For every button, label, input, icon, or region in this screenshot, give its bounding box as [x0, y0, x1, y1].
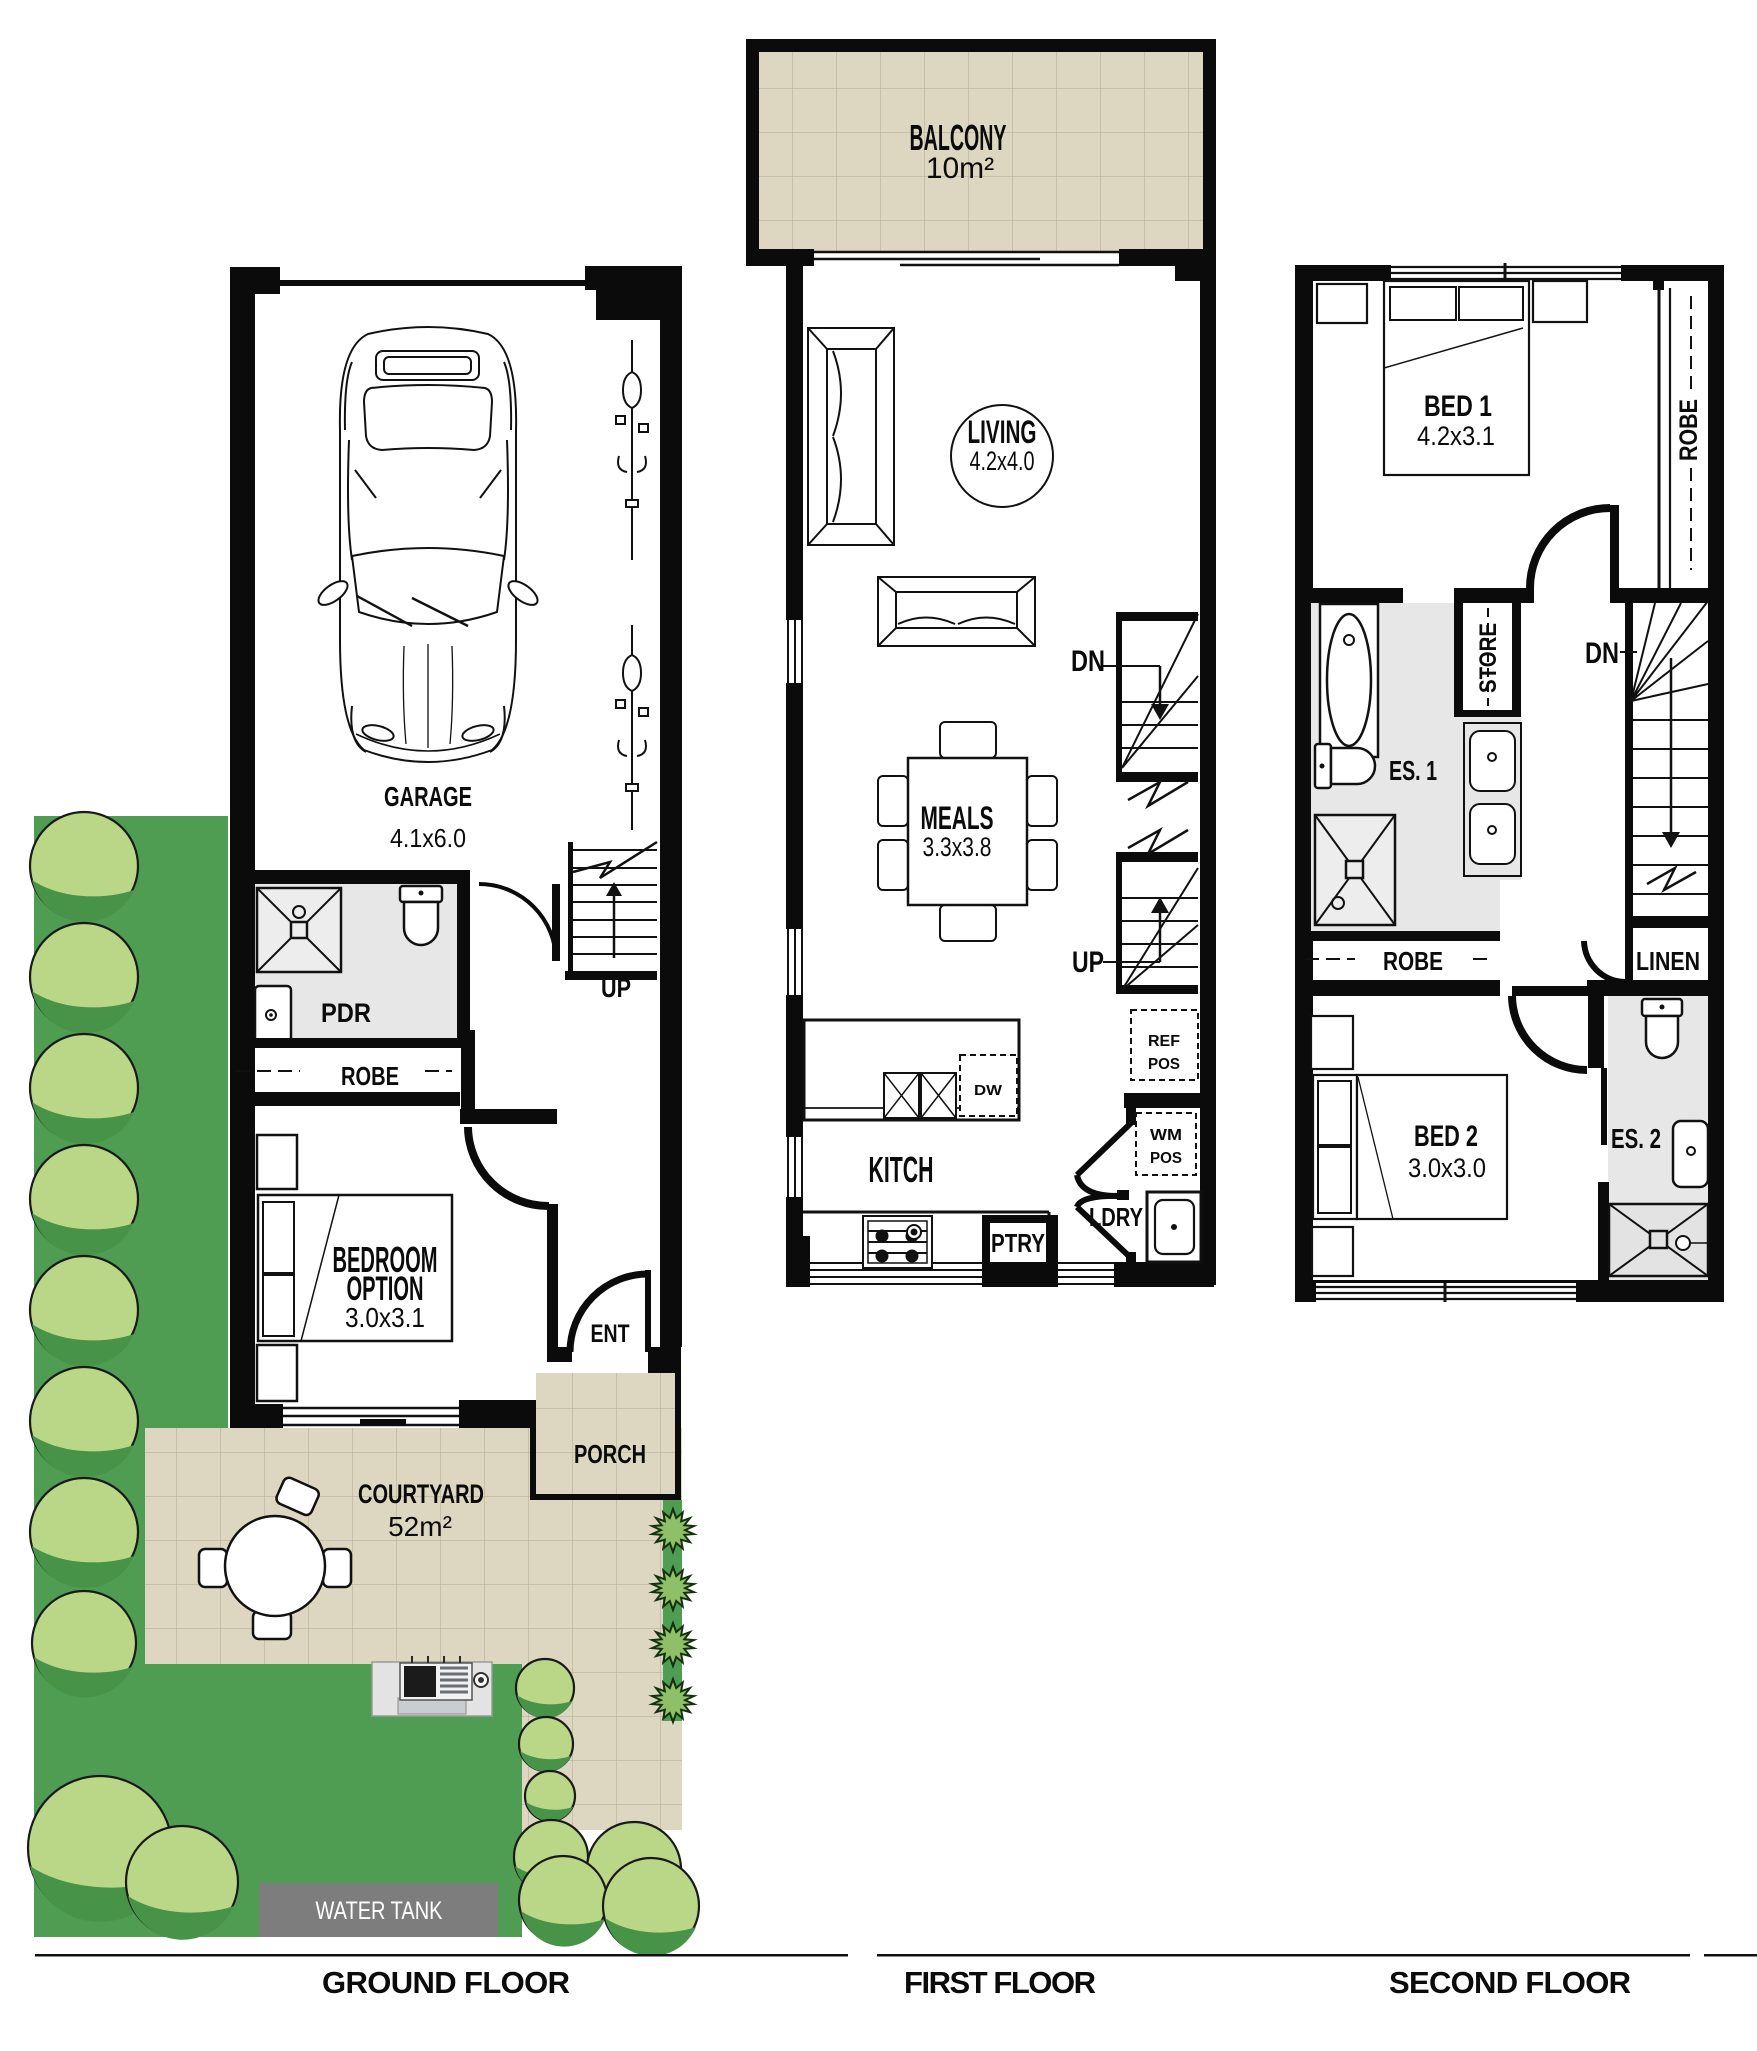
svg-text:STORE: STORE	[1475, 623, 1502, 693]
svg-text:REF: REF	[1148, 1033, 1180, 1050]
svg-text:POS: POS	[1150, 1150, 1182, 1167]
svg-text:GROUND FLOOR: GROUND FLOOR	[322, 1965, 570, 2000]
svg-text:52m²: 52m²	[388, 1511, 452, 1542]
svg-text:COURTYARD: COURTYARD	[358, 1479, 484, 1509]
svg-text:KITCH: KITCH	[869, 1149, 934, 1190]
svg-text:ROBE: ROBE	[1383, 946, 1443, 976]
svg-text:3.0x3.0: 3.0x3.0	[1408, 1153, 1486, 1183]
svg-text:UP: UP	[601, 973, 631, 1003]
svg-text:BED 2: BED 2	[1414, 1120, 1478, 1153]
svg-text:WM: WM	[1150, 1127, 1182, 1144]
svg-text:ENT: ENT	[591, 1320, 630, 1348]
svg-text:4.1x6.0: 4.1x6.0	[390, 823, 466, 853]
svg-text:PDR: PDR	[321, 998, 371, 1028]
svg-text:BED 1: BED 1	[1424, 390, 1492, 423]
svg-text:3.3x3.8: 3.3x3.8	[923, 832, 992, 862]
svg-text:LIVING: LIVING	[968, 414, 1037, 450]
svg-text:ROBE: ROBE	[1675, 399, 1703, 461]
svg-text:WATER TANK: WATER TANK	[316, 1897, 443, 1925]
svg-text:ROBE: ROBE	[341, 1061, 399, 1091]
svg-text:FIRST FLOOR: FIRST FLOOR	[904, 1965, 1096, 2000]
svg-text:LDRY: LDRY	[1089, 1202, 1143, 1232]
svg-text:PTRY: PTRY	[991, 1228, 1045, 1258]
svg-text:ES. 1: ES. 1	[1389, 755, 1437, 786]
svg-text:GARAGE: GARAGE	[384, 781, 472, 812]
svg-text:UP: UP	[1072, 946, 1104, 979]
svg-text:MEALS: MEALS	[921, 800, 994, 836]
svg-text:LINEN: LINEN	[1636, 946, 1700, 976]
svg-text:ES. 2: ES. 2	[1611, 1123, 1661, 1154]
svg-text:DW: DW	[974, 1082, 1003, 1099]
svg-text:DN: DN	[1071, 645, 1105, 678]
svg-text:SECOND FLOOR: SECOND FLOOR	[1389, 1965, 1631, 2000]
svg-text:3.0x3.1: 3.0x3.1	[345, 1302, 425, 1333]
svg-text:4.2x4.0: 4.2x4.0	[970, 446, 1035, 476]
svg-text:POS: POS	[1148, 1056, 1180, 1073]
svg-text:10m²: 10m²	[926, 152, 994, 185]
svg-text:PORCH: PORCH	[574, 1439, 646, 1469]
svg-text:DN: DN	[1585, 637, 1619, 670]
svg-text:4.2x3.1: 4.2x3.1	[1417, 421, 1495, 451]
